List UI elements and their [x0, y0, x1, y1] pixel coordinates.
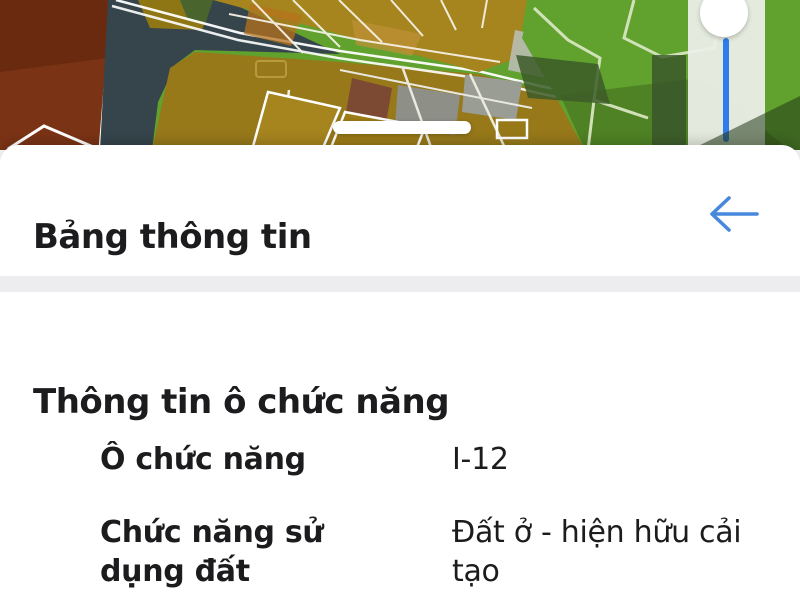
sheet-drag-handle[interactable] [333, 121, 471, 134]
field-value: Đất ở - hiện hữu cải tạo [452, 513, 752, 591]
zoom-slider-thumb[interactable] [700, 0, 748, 37]
field-label: Chức năng sử dụng đất [100, 513, 345, 591]
back-button[interactable] [702, 192, 766, 236]
arrow-left-icon [707, 195, 761, 233]
section-heading: Thông tin ô chức năng [33, 380, 449, 424]
zoom-slider-track[interactable] [723, 38, 729, 142]
section-divider [0, 276, 800, 292]
sheet-title: Bảng thông tin [33, 215, 312, 259]
field-label: Ô chức năng [100, 440, 345, 479]
info-row-land-use: Chức năng sử dụng đất Đất ở - hiện hữu c… [100, 513, 790, 591]
info-row-functional-cell: Ô chức năng I-12 [100, 440, 790, 479]
zoom-slider[interactable] [688, 0, 765, 150]
field-value: I-12 [452, 440, 752, 479]
